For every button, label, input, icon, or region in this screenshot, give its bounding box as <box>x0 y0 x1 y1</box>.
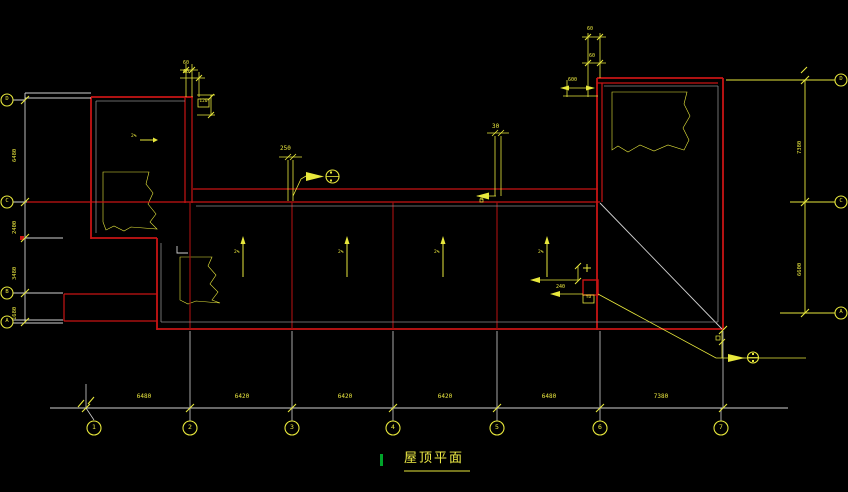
axis-bubble-label: D <box>3 97 11 103</box>
axis-bubble-label: 2 <box>186 424 194 431</box>
parapet-dimension-and-detail-mark <box>279 154 339 201</box>
right-dim-text-1: 7380 <box>798 141 804 154</box>
roof-drain-box <box>583 280 598 295</box>
left-dim-text-3: 3480 <box>13 267 19 280</box>
topleft-flag-text: 120 <box>199 100 208 105</box>
axis-bubble-label: 7 <box>717 424 725 431</box>
axis-bubble-label: C <box>3 199 11 205</box>
interior-axis-lines <box>190 202 497 329</box>
slope-label: 2% <box>434 251 439 256</box>
gutter-dimension <box>476 130 509 202</box>
axis-bubble-label: B <box>3 290 11 296</box>
axis-bubble-label: 5 <box>493 424 501 431</box>
drain-dim-text: 240 <box>556 285 565 290</box>
parapet-dim-text: 250 <box>280 146 291 152</box>
bottom-dim-text-6: 7380 <box>641 394 681 400</box>
topright-dim-text: 60 <box>587 27 593 32</box>
slope-label: 2% <box>338 251 343 256</box>
axis-bubble-label: A <box>3 319 11 325</box>
slope-arrows <box>140 138 550 278</box>
cad-drawing-canvas: 6480 6420 6420 6420 6480 7380 6480 2400 … <box>0 0 848 492</box>
leader-arrow-icon <box>306 172 324 181</box>
bottom-dim-text-4: 6420 <box>425 394 465 400</box>
hatch-area-right-tower <box>612 92 690 152</box>
topleft-dim-text: 60 <box>183 61 189 66</box>
topright-corner-dimensions <box>560 33 606 97</box>
slope-arrow-icon <box>545 236 550 244</box>
slope-label: 2% <box>234 251 239 256</box>
left-dim-text-1: 6480 <box>13 149 19 162</box>
axis-bubble-label: 4 <box>389 424 397 431</box>
gutter-dim-text: 30 <box>492 124 499 130</box>
roof-outline <box>20 78 723 330</box>
drawing-title: 屋顶平面 <box>404 452 464 465</box>
drain-flag-text: YD <box>584 296 593 301</box>
slope-arrow-icon <box>241 236 246 244</box>
white-extension-lines <box>13 86 788 421</box>
topright-dim-text: 60 <box>589 54 595 59</box>
slope-arrow-icon <box>441 236 446 244</box>
slope-arrow-icon <box>345 236 350 244</box>
axis-bubble-label: 1 <box>90 424 98 431</box>
dimension-marks <box>21 67 835 412</box>
drain-dimensions-and-leader <box>530 263 806 363</box>
bottom-dim-text-3: 6420 <box>325 394 365 400</box>
hatch-area-lower-left <box>180 257 220 304</box>
topright-dim-text: 600 <box>568 78 577 83</box>
bottom-dim-text-1: 6480 <box>124 394 164 400</box>
axis-bubble-label: C <box>837 199 845 205</box>
axis-bubble-label: 6 <box>596 424 604 431</box>
roof-valley-diagonal <box>600 203 722 329</box>
axis-bubble-label: D <box>837 77 845 83</box>
left-dim-text-4: 1680 <box>13 307 19 320</box>
axis-bubble-label: 3 <box>288 424 296 431</box>
slope-label: 2% <box>131 135 136 140</box>
roof-plan-linework <box>0 0 848 492</box>
green-marker <box>380 454 383 466</box>
grid-bubbles <box>1 74 847 435</box>
axis-bubble-label: A <box>837 310 845 316</box>
bottom-dim-text-5: 6480 <box>529 394 569 400</box>
leader-mark-text: 4 <box>480 197 483 202</box>
left-dim-text-2: 2400 <box>13 221 19 234</box>
right-dim-text-2: 6600 <box>798 263 804 276</box>
slope-arrow-icon <box>153 138 158 143</box>
topleft-dim-text: 60 <box>183 70 189 75</box>
leader-arrow-icon <box>728 354 745 362</box>
bottom-dim-text-2: 6420 <box>222 394 262 400</box>
slope-label: 2% <box>538 251 543 256</box>
